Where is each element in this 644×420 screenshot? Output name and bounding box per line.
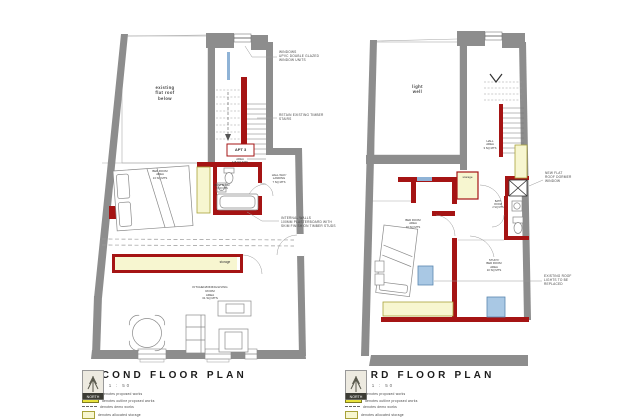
furniture	[375, 225, 418, 297]
label-hallway: HALL WAY/ LANDING 7 SQ MTS	[264, 174, 294, 184]
plan-title: SECOND FLOOR PLAN	[82, 370, 247, 381]
stair-direction-arrow	[225, 134, 231, 141]
legend-swatch-storage	[345, 411, 358, 419]
label-flat-roof: existing flat roof below	[130, 85, 200, 101]
plan-scale: SCALE 1 : 50	[345, 383, 495, 388]
legend-label: denotes demo works	[363, 405, 397, 409]
second-floor-plan	[91, 33, 306, 362]
legend-label: denotes proposed works	[365, 392, 405, 396]
floor-plan-sheet: existing flat roof below APT 3 AREA 115 …	[0, 0, 644, 420]
legend-label: denotes allocated storage	[98, 413, 141, 417]
label-light-well: light well	[395, 84, 440, 95]
windows	[485, 32, 502, 40]
toilet-bowl	[225, 173, 233, 184]
label-bathroom: BATH ROOM 2 SQ MTS	[492, 200, 504, 209]
plan-scale: SCALE 1 : 50	[82, 383, 247, 388]
legend: denotes proposed works denotes outline p…	[82, 391, 247, 420]
third-floor-titleblock: NORTH THIRD FLOOR PLAN SCALE 1 : 50 deno…	[345, 370, 495, 420]
note-stairs: RETAIN EXISTING TIMBER STAIRS	[279, 113, 339, 121]
plan-title: THIRD FLOOR PLAN	[345, 370, 495, 381]
legend-swatch-demo	[82, 406, 97, 407]
legend-swatch-storage	[82, 411, 95, 419]
label-bedroom: BED ROOM AREA 10 SQ MTS	[398, 219, 428, 229]
third-floor-plan	[361, 31, 543, 366]
architect-north-logo: NORTH	[345, 370, 367, 400]
label-bedroom: BED ROOM AREA 13 SQ MTS	[146, 170, 174, 180]
legend-label: denotes proposed works	[102, 392, 142, 396]
note-windows: WINDOWS UPVC DOUBLE GLAZED WINDOW UNITS	[279, 50, 337, 62]
nightstand	[375, 274, 384, 285]
legend-label: denotes demo works	[100, 405, 134, 409]
note-internal-walls: INTERNAL WALLS 100MM PLASTERBOARD WITH S…	[281, 216, 345, 228]
legend-swatch-demo	[345, 406, 360, 407]
glazed-screen	[227, 52, 230, 80]
logo-text: NORTH	[87, 395, 100, 399]
logo-text: NORTH	[350, 395, 363, 399]
note-rooflights: EXISTING ROOF LIGHTS TO BE REPLACED	[544, 274, 588, 286]
label-storage: storage	[457, 176, 478, 180]
rooflight	[418, 266, 433, 285]
label-apt-tag: APT 3	[227, 147, 254, 152]
demolition-lines	[102, 239, 297, 246]
toilet-cistern	[513, 217, 523, 223]
stair-direction-arrow	[490, 74, 502, 82]
floor-plan-drawing	[0, 0, 644, 420]
basin	[514, 203, 520, 209]
dining-table	[133, 319, 162, 348]
legend-label: denotes outline proposed works	[102, 399, 155, 403]
glazed-screen	[417, 177, 432, 181]
legend-label: denotes allocated storage	[361, 413, 404, 417]
bathroom-fixtures	[512, 201, 523, 234]
legend-label: denotes outline proposed works	[365, 399, 418, 403]
note-dormer: NEW FLAT ROOF DORMER WINDOW	[545, 171, 587, 183]
label-bathroom: BATH ROOM 3 SQ MTS	[213, 184, 231, 190]
sofa	[186, 315, 205, 353]
legend: denotes proposed works denotes outline p…	[345, 391, 495, 420]
armchair	[219, 329, 248, 352]
rooflight	[487, 297, 505, 317]
nightstand	[375, 261, 384, 272]
architect-north-logo: NORTH	[82, 370, 104, 400]
label-storage: storage	[208, 260, 242, 264]
label-apt-area: AREA 115 SQ MTS	[224, 158, 256, 165]
label-hall: HALL AREA 3 SQ MTS	[478, 140, 502, 150]
second-floor-titleblock: NORTH SECOND FLOOR PLAN SCALE 1 : 50 den…	[82, 370, 247, 420]
toilet-bowl	[514, 223, 522, 234]
label-study: STUDY/ BED ROOM AREA 10 SQ MTS	[481, 259, 507, 273]
tv-unit	[218, 301, 251, 316]
label-living-room: KITCHEN/DINING/LIVING ROOM AREA 31 SQ MT…	[178, 286, 242, 301]
